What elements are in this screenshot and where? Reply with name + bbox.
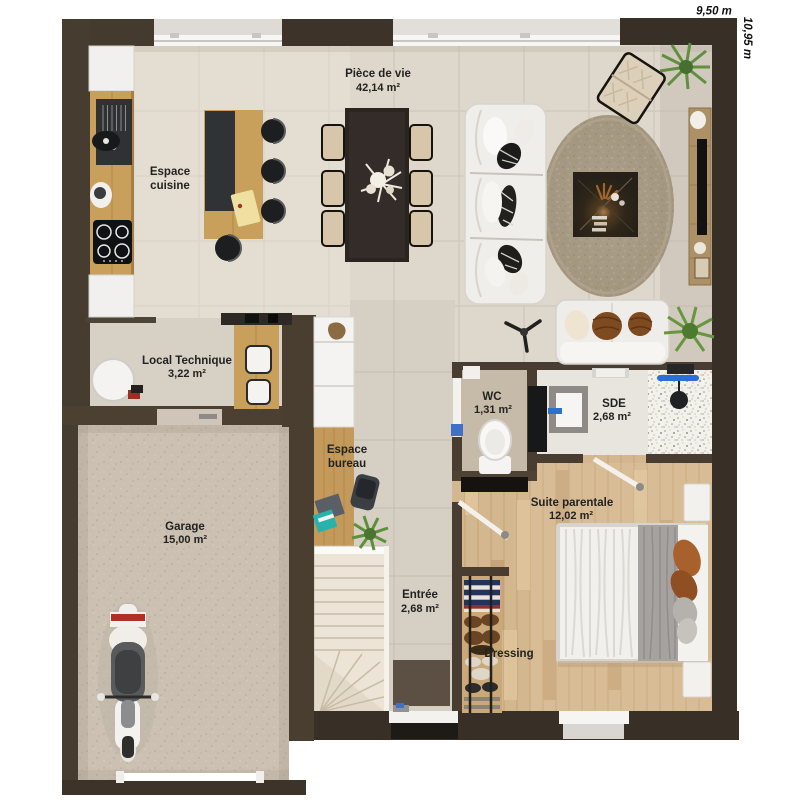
- svg-text:3,22 m²: 3,22 m²: [168, 368, 206, 380]
- svg-text:Entrée: Entrée: [402, 589, 438, 601]
- svg-text:10,95 m: 10,95 m: [741, 17, 753, 59]
- svg-text:Local Technique: Local Technique: [142, 355, 232, 367]
- svg-text:Espace: Espace: [327, 444, 367, 456]
- svg-text:Suite parentale: Suite parentale: [531, 497, 613, 509]
- svg-text:SDE: SDE: [602, 398, 626, 410]
- svg-text:cuisine: cuisine: [150, 180, 190, 192]
- svg-text:bureau: bureau: [328, 458, 366, 470]
- svg-text:9,50 m: 9,50 m: [696, 6, 732, 18]
- svg-text:Espace: Espace: [150, 166, 190, 178]
- svg-text:WC: WC: [482, 391, 501, 403]
- svg-text:15,00 m²: 15,00 m²: [163, 534, 207, 546]
- svg-text:Pièce de vie: Pièce de vie: [345, 68, 411, 80]
- svg-text:Dressing: Dressing: [484, 648, 533, 660]
- svg-text:42,14 m²: 42,14 m²: [356, 82, 400, 94]
- svg-text:12,02 m²: 12,02 m²: [549, 510, 593, 522]
- svg-text:2,68 m²: 2,68 m²: [401, 603, 439, 615]
- svg-text:Garage: Garage: [165, 521, 205, 533]
- svg-text:2,68 m²: 2,68 m²: [593, 411, 631, 423]
- svg-text:1,31 m²: 1,31 m²: [474, 404, 512, 416]
